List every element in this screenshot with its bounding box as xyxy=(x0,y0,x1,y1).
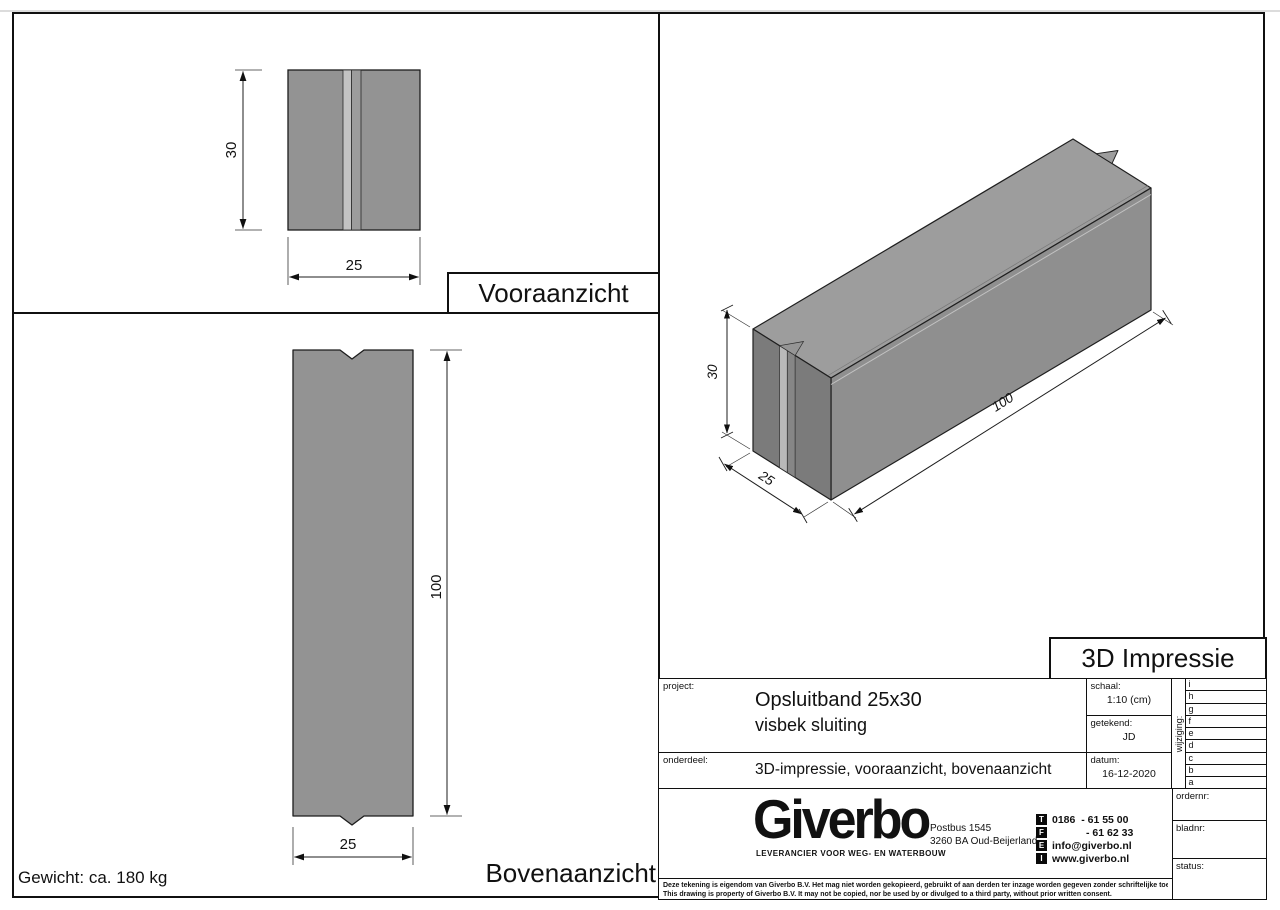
front-view-title: Vooraanzicht xyxy=(447,272,660,314)
disclaimer-line1: Deze tekening is eigendom van Giverbo B.… xyxy=(663,881,1168,890)
revision-row: e xyxy=(1186,728,1267,740)
iso-height-dim-label: 30 xyxy=(705,364,720,380)
contact-row-website: I www.giverbo.nl xyxy=(1036,852,1133,865)
iso-length-tick-far xyxy=(1163,310,1172,324)
wijziging-label: wijziging: xyxy=(1174,699,1184,769)
front-width-dim-label: 25 xyxy=(346,257,363,274)
datum-label: datum: xyxy=(1091,755,1120,766)
onderdeel-cell: onderdeel: 3D-impressie, vooraanzicht, b… xyxy=(658,752,1087,790)
email-value: info@giverbo.nl xyxy=(1052,840,1132,852)
revision-row: h xyxy=(1186,691,1267,703)
front-view-drawing: 30 25 xyxy=(210,55,440,300)
drawing-sheet: 30 25 100 25 xyxy=(0,0,1280,910)
contact-row-phone: T 0186 - 61 55 00 xyxy=(1036,813,1133,826)
contact-row-fax: F - 61 62 33 xyxy=(1036,826,1133,839)
top-width-dim-label: 25 xyxy=(340,836,357,853)
iso-height-ext-top xyxy=(722,310,750,327)
top-view-body xyxy=(293,350,413,825)
top-view-title: Bovenaanzicht xyxy=(430,858,656,889)
onderdeel-value: 3D-impressie, vooraanzicht, bovenaanzich… xyxy=(755,761,1051,779)
bladnr-label: bladnr: xyxy=(1176,823,1205,834)
revision-row: d xyxy=(1186,740,1267,752)
website-value: www.giverbo.nl xyxy=(1052,853,1129,865)
email-icon: E xyxy=(1036,840,1047,851)
project-label: project: xyxy=(663,681,694,692)
project-name: Opsluitband 25x30 xyxy=(755,689,922,712)
iso-view-title: 3D Impressie xyxy=(1049,637,1267,680)
phone-icon: T xyxy=(1036,814,1047,825)
front-groove-mid-stripe xyxy=(352,70,362,230)
project-cell: project: Opsluitband 25x30 visbek sluiti… xyxy=(658,678,1087,753)
iso-view-drawing: 30 25 100 xyxy=(680,110,1270,640)
revision-row: i xyxy=(1186,679,1267,691)
address-line2: 3260 BA Oud-Beijerland xyxy=(930,835,1037,848)
website-icon: I xyxy=(1036,853,1047,864)
datum-value: 16-12-2020 xyxy=(1087,768,1172,780)
iso-groove-mid-band xyxy=(787,351,795,478)
bladnr-cell: bladnr: xyxy=(1171,820,1267,860)
iso-length-tick-near xyxy=(849,508,858,522)
top-view-drawing: 100 25 xyxy=(270,335,470,880)
phone-value: 0186 - 61 55 00 xyxy=(1052,814,1128,826)
iso-width-tick-left xyxy=(719,457,727,471)
top-length-dim-label: 100 xyxy=(428,574,445,599)
schaal-value: 1:10 (cm) xyxy=(1087,694,1172,706)
revision-row: b xyxy=(1186,765,1267,777)
contact-row-email: E info@giverbo.nl xyxy=(1036,839,1133,852)
project-subtitle: visbek sluiting xyxy=(755,715,867,736)
front-groove-light-stripe xyxy=(343,70,352,230)
status-cell: status: xyxy=(1171,858,1267,900)
iso-length-ext-far xyxy=(1153,312,1173,325)
address-line1: Postbus 1545 xyxy=(930,822,1037,835)
front-height-dim-label: 30 xyxy=(223,142,240,159)
contact-list: T 0186 - 61 55 00 F - 61 62 33 E info@gi… xyxy=(1036,813,1133,865)
fax-icon: F xyxy=(1036,827,1047,838)
onderdeel-label: onderdeel: xyxy=(663,755,708,766)
disclaimer-cell: Deze tekening is eigendom van Giverbo B.… xyxy=(658,878,1173,900)
iso-length-ext-near xyxy=(833,502,856,518)
schaal-cell: schaal: 1:10 (cm) xyxy=(1086,678,1173,717)
ordernr-label: ordernr: xyxy=(1176,791,1209,802)
disclaimer-line2: This drawing is property of Giverbo B.V.… xyxy=(663,890,1168,899)
getekend-label: getekend: xyxy=(1091,718,1133,729)
datum-cell: datum: 16-12-2020 xyxy=(1086,752,1173,790)
revision-row: f xyxy=(1186,716,1267,728)
revision-row: a xyxy=(1186,777,1267,788)
iso-height-ext-bottom xyxy=(722,432,750,449)
schaal-label: schaal: xyxy=(1091,681,1121,692)
company-cell: Giverbo LEVERANCIER VOOR WEG- EN WATERBO… xyxy=(658,788,1173,880)
company-tagline: LEVERANCIER VOOR WEG- EN WATERBOUW xyxy=(756,849,946,858)
revision-row: c xyxy=(1186,753,1267,765)
iso-width-ext-right xyxy=(804,502,828,517)
status-label: status: xyxy=(1176,861,1204,872)
getekend-value: JD xyxy=(1087,731,1172,743)
company-address: Postbus 1545 3260 BA Oud-Beijerland xyxy=(930,822,1037,848)
weight-note: Gewicht: ca. 180 kg xyxy=(18,868,167,888)
ordernr-cell: ordernr: xyxy=(1171,788,1267,822)
iso-groove-light-band xyxy=(780,346,788,473)
getekend-cell: getekend: JD xyxy=(1086,715,1173,754)
company-logo: Giverbo xyxy=(753,787,928,851)
revision-row: g xyxy=(1186,704,1267,716)
iso-width-ext-left xyxy=(726,453,750,467)
title-block: project: Opsluitband 25x30 visbek sluiti… xyxy=(658,678,1267,900)
fax-value: - 61 62 33 xyxy=(1086,827,1133,839)
revision-table: i h g f e d c b a xyxy=(1185,678,1268,790)
